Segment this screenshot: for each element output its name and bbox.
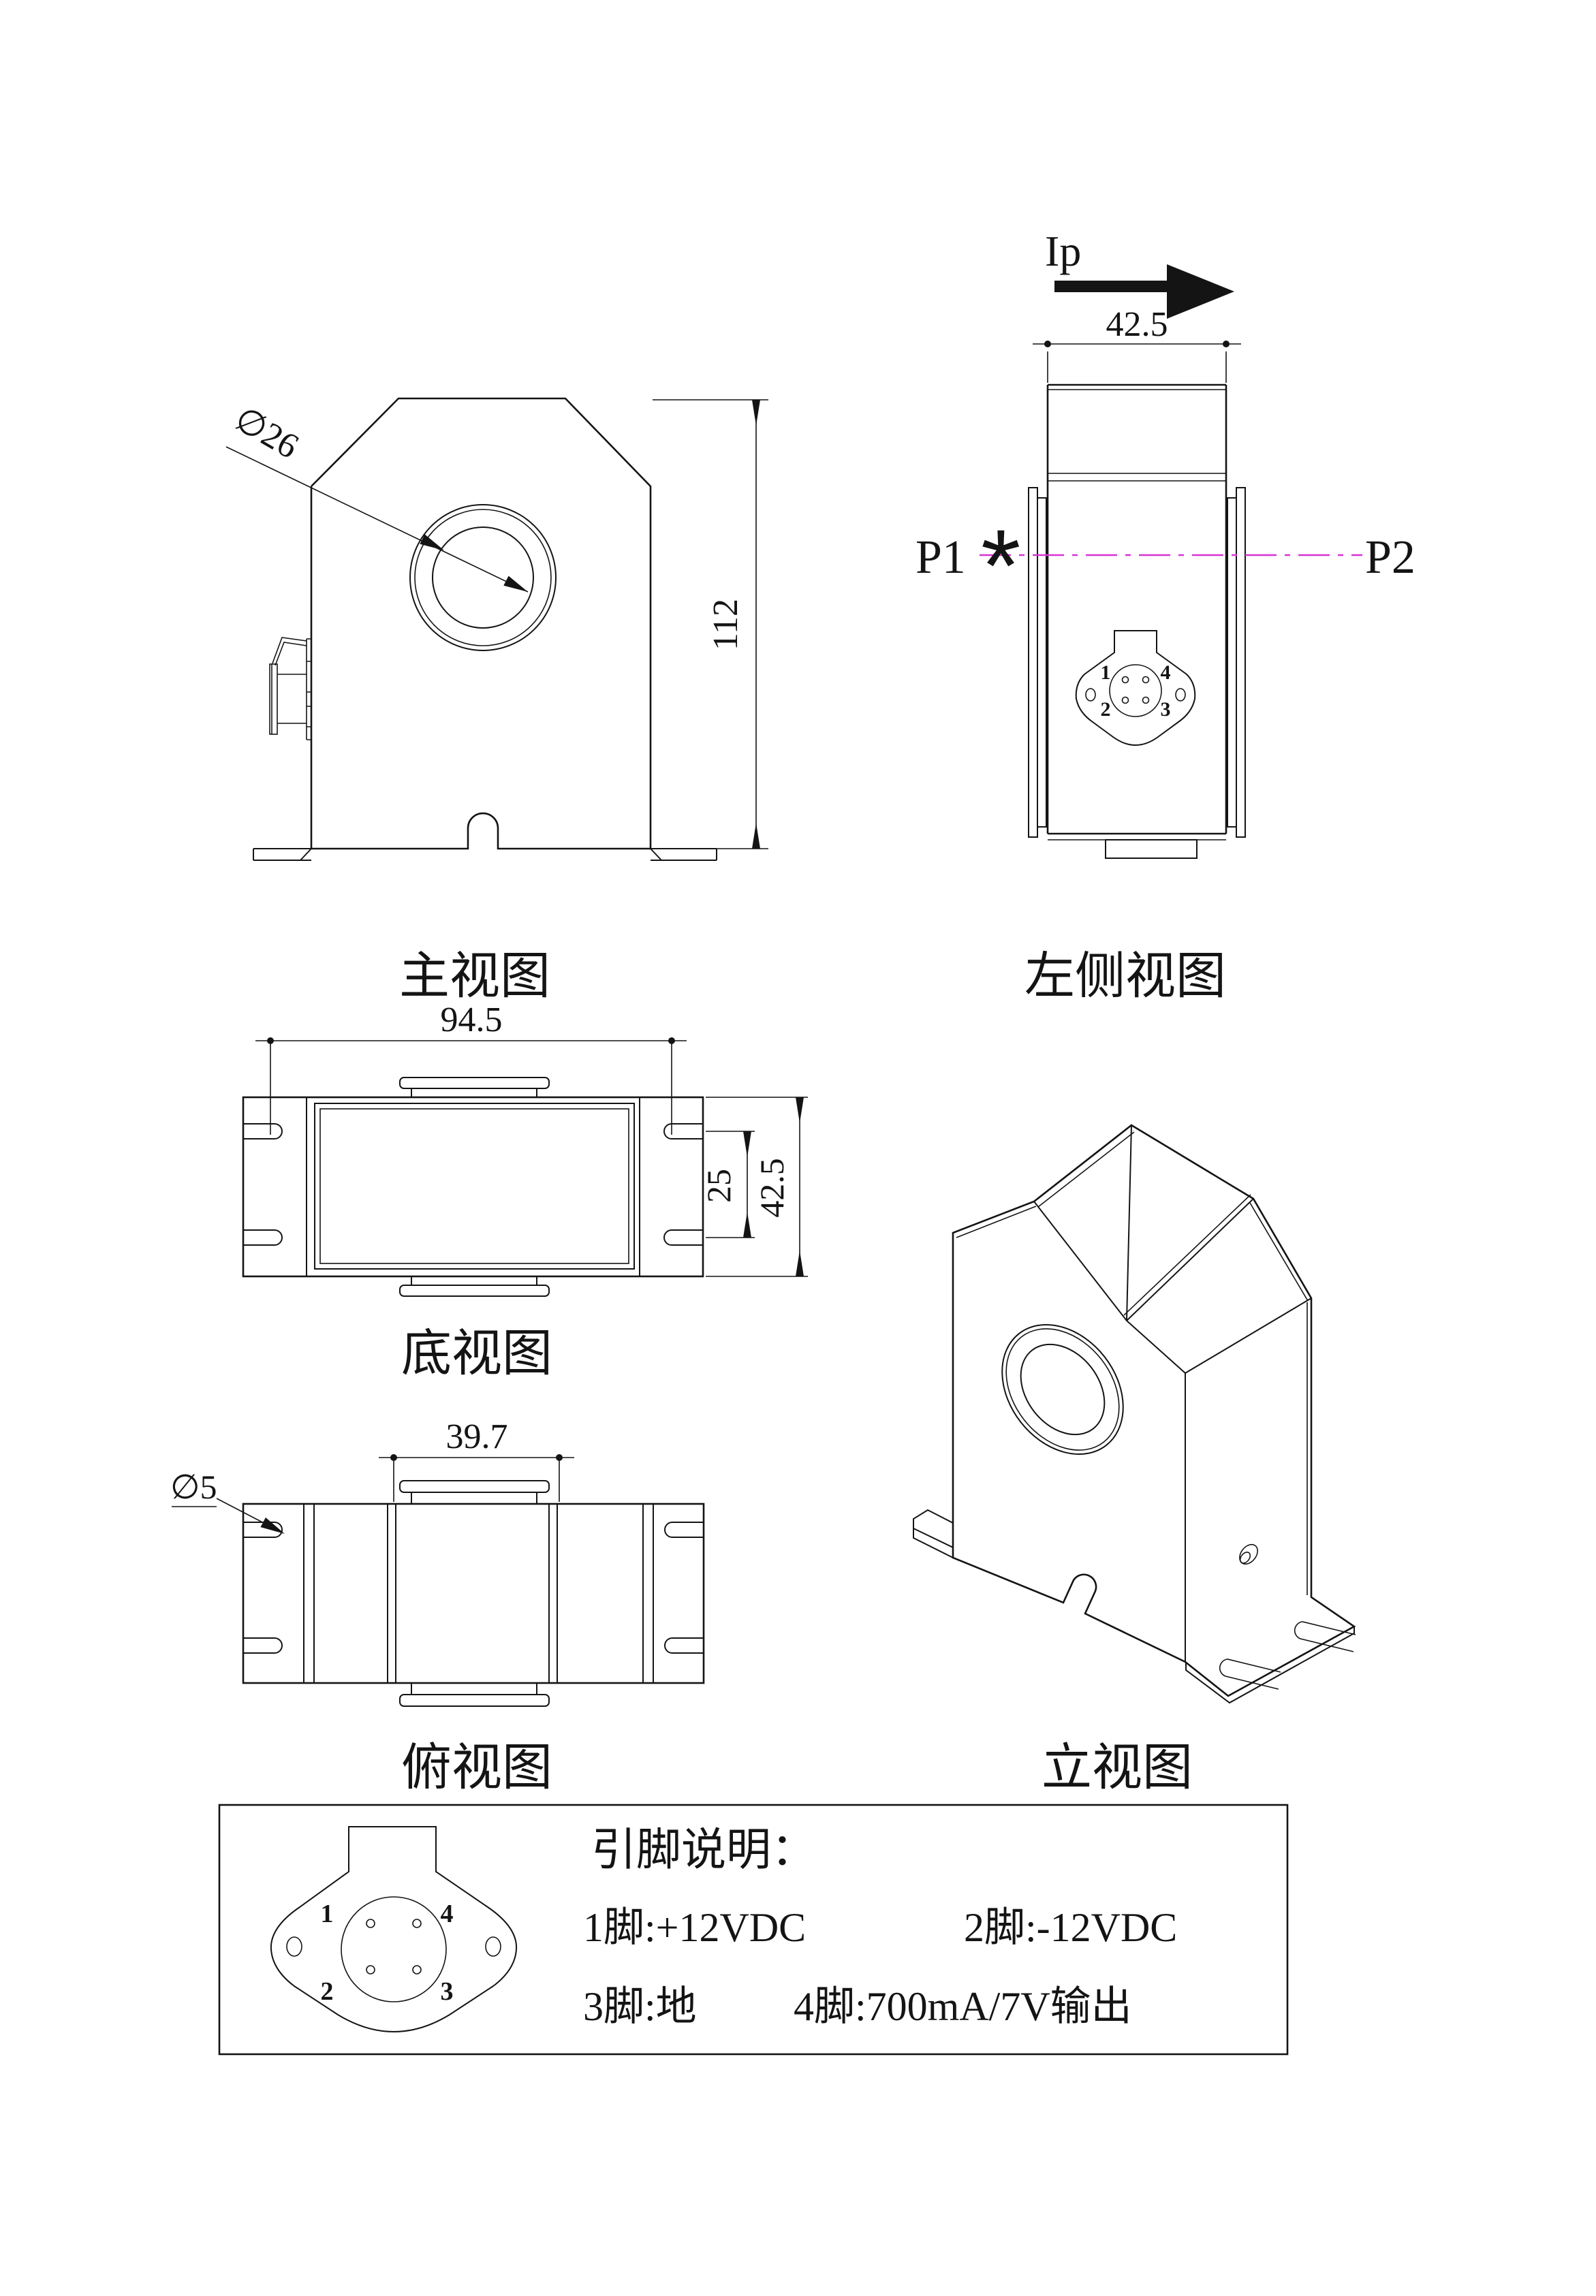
- table-pin-3: 3: [441, 1977, 454, 2006]
- side-caption: 左侧视图: [1024, 949, 1226, 1005]
- dim-height-112: 112: [653, 400, 768, 849]
- top-caption: 俯视图: [401, 1740, 552, 1796]
- pin2-desc: 2脚:-12VDC: [964, 1905, 1177, 1950]
- din-clip: [270, 638, 311, 740]
- bottom-depth-label: 42.5: [753, 1158, 791, 1218]
- dim-hole-dia: ∅26: [226, 400, 531, 597]
- pin1-desc: 1脚:+12VDC: [583, 1905, 806, 1950]
- table-connector: 1 4 2 3: [271, 1827, 516, 2032]
- side-body: [1048, 385, 1226, 834]
- pin-table-title: 引脚说明：: [591, 1825, 816, 1875]
- front-view: ∅26 112 主视图: [226, 398, 768, 1005]
- dim-39-7: 39.7: [379, 1417, 574, 1502]
- front-hole-ring: [415, 509, 551, 646]
- side-pin-3: 3: [1161, 698, 1171, 721]
- iso-hole: [977, 1301, 1148, 1478]
- bottom-view: 94.5 25 42.5 底视图: [243, 1001, 808, 1382]
- side-pin-1: 1: [1101, 661, 1111, 684]
- side-clamp-plates: [1029, 488, 1245, 837]
- side-pin-4: 4: [1161, 661, 1171, 684]
- front-hole-inner: [433, 527, 533, 628]
- bottom-caption: 底视图: [401, 1326, 552, 1382]
- iso-foot: [1186, 1622, 1356, 1703]
- iso-caption: 立视图: [1042, 1740, 1193, 1796]
- slot-span-label: 25: [700, 1169, 738, 1203]
- drawing-sheet: ∅26 112 主视图 Ip 42.5: [0, 0, 1596, 2296]
- current-label: Ip: [1045, 227, 1081, 275]
- p1-label: P1: [916, 531, 966, 584]
- polarity-asterisk: *: [981, 508, 1020, 623]
- dim-width-42-5: 42.5: [1033, 305, 1241, 383]
- pin4-desc: 4脚:700mA/7V输出: [794, 1984, 1132, 2029]
- side-pin-2: 2: [1101, 698, 1111, 721]
- hole-dia-label: ∅26: [228, 400, 305, 467]
- front-outline: [311, 398, 651, 849]
- table-pin-4: 4: [441, 1900, 454, 1928]
- dim-25: 25: [700, 1131, 755, 1238]
- pin-table: 1 4 2 3 引脚说明： 1脚:+12VDC 2脚:-12VDC 3脚:地 4…: [219, 1805, 1287, 2054]
- top-view: 39.7 ∅5 俯视图: [170, 1417, 704, 1796]
- front-caption: 主视图: [399, 949, 550, 1005]
- side-bottom-tab: [1106, 840, 1197, 858]
- pin3-desc: 3脚:地: [583, 1984, 697, 2029]
- p2-label: P2: [1365, 531, 1415, 584]
- side-width-label: 42.5: [1106, 305, 1168, 344]
- front-feet: [253, 849, 717, 860]
- iso-side-hole: [1236, 1541, 1261, 1568]
- height-label: 112: [706, 599, 745, 650]
- top-core-width-label: 39.7: [446, 1417, 508, 1456]
- iso-left-foot: [913, 1510, 953, 1558]
- bottom-width-label: 94.5: [441, 1001, 503, 1039]
- iso-view: 立视图: [913, 1125, 1356, 1796]
- table-pin-1: 1: [321, 1900, 334, 1928]
- iso-edges: [1034, 1125, 1311, 1662]
- side-connector: 1 4 2 3: [1076, 631, 1195, 745]
- top-outline: [243, 1504, 704, 1683]
- table-pin-2: 2: [321, 1977, 334, 2006]
- top-slots: [243, 1522, 704, 1653]
- slot-dia-label: ∅5: [170, 1468, 217, 1506]
- side-view: Ip 42.5 P1 P2 *: [916, 227, 1415, 1005]
